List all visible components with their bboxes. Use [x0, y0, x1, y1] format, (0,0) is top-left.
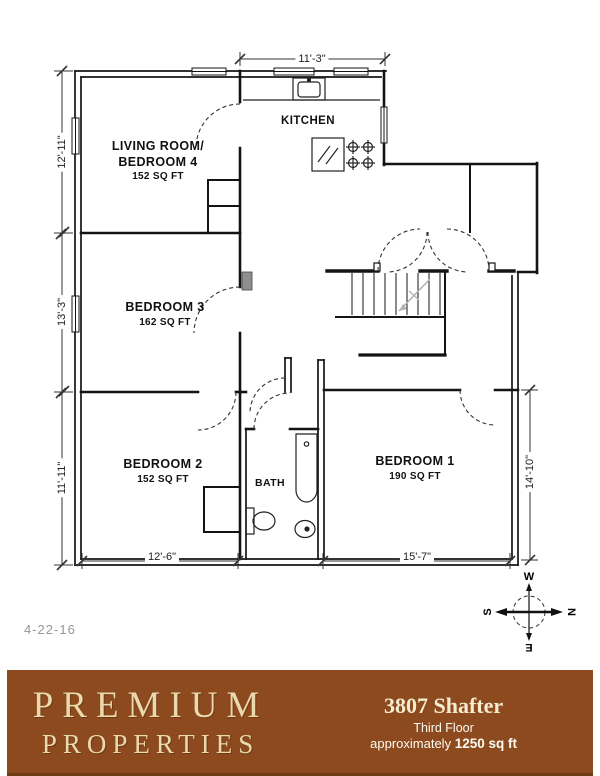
compass-east-arrow	[551, 608, 563, 616]
dim-right: 14'-10"	[524, 452, 536, 492]
bath-sink	[253, 512, 275, 530]
bed2-area: 152 SQ FT	[83, 474, 243, 487]
dim-left-bottom: 11'-11"	[56, 459, 68, 498]
dim-bottom-left: 12'-6"	[145, 551, 179, 563]
living-line2: BEDROOM 4	[118, 155, 197, 169]
stove-burners	[346, 140, 375, 170]
staircase	[352, 273, 440, 315]
dim-left-top: 12'-11"	[56, 132, 68, 171]
plan-date: 4-22-16	[24, 622, 76, 637]
brand-properties: PROPERTIES	[42, 729, 259, 760]
bed1-area: 190 SQ FT	[335, 471, 495, 484]
room-label-bath: BATH	[240, 477, 300, 490]
bath-door-swing	[254, 393, 290, 429]
stove	[312, 138, 344, 171]
listing-address: 3807 Shafter	[384, 693, 503, 719]
floor-plan-drawing: W N S E	[0, 0, 600, 668]
brand-premium: PREMIUM	[33, 684, 269, 727]
floor-plan-page: W N S E LIVING ROOM/ BEDROOM 4 152 SQ FT…	[0, 0, 600, 776]
kitchen-door-left-swing	[378, 229, 420, 271]
compass-west-arrow	[495, 608, 507, 616]
bedroom2-door-swing	[198, 392, 236, 430]
bathtub	[296, 434, 317, 502]
living-line1: LIVING ROOM/	[112, 139, 204, 153]
dim-bottom-right: 15'-7"	[400, 551, 434, 563]
room-label-bed3: BEDROOM 3 162 SQ FT	[85, 300, 245, 329]
room-label-living: LIVING ROOM/ BEDROOM 4 152 SQ FT	[78, 139, 238, 184]
compass-rose: W N S E	[482, 571, 577, 653]
compass-label-n: N	[565, 608, 577, 616]
approx-prefix: approximately	[370, 736, 455, 751]
bed3-area: 162 SQ FT	[85, 317, 245, 330]
brand-logo: PREMIUM PROPERTIES	[7, 670, 294, 773]
pocket-door-panel	[242, 272, 252, 290]
dim-left-middle: 13'-3"	[56, 295, 68, 329]
listing-floor: Third Floor	[413, 721, 473, 735]
living-area: 152 SQ FT	[78, 171, 238, 184]
compass-label-w: W	[524, 571, 535, 583]
footer-banner: PREMIUM PROPERTIES 3807 Shafter Third Fl…	[7, 670, 593, 776]
room-label-bed1: BEDROOM 1 190 SQ FT	[335, 454, 495, 483]
windows	[72, 68, 387, 332]
room-label-bed2: BEDROOM 2 152 SQ FT	[83, 457, 243, 486]
double-door-right-swing	[428, 232, 468, 272]
listing-info: 3807 Shafter Third Floor approximately 1…	[294, 670, 593, 773]
kitchen-door-right-swing	[447, 229, 489, 271]
dim-top: 11'-3"	[295, 53, 328, 65]
bedroom1-door-swing	[460, 390, 495, 425]
listing-approx: approximately 1250 sq ft	[370, 736, 517, 751]
double-door-left-swing	[387, 232, 427, 272]
compass-label-s: S	[482, 608, 494, 615]
approx-area: 1250 sq ft	[455, 736, 517, 751]
room-label-kitchen: KITCHEN	[248, 114, 368, 128]
compass-label-e: E	[525, 641, 532, 653]
hall-door-swing	[250, 378, 285, 413]
